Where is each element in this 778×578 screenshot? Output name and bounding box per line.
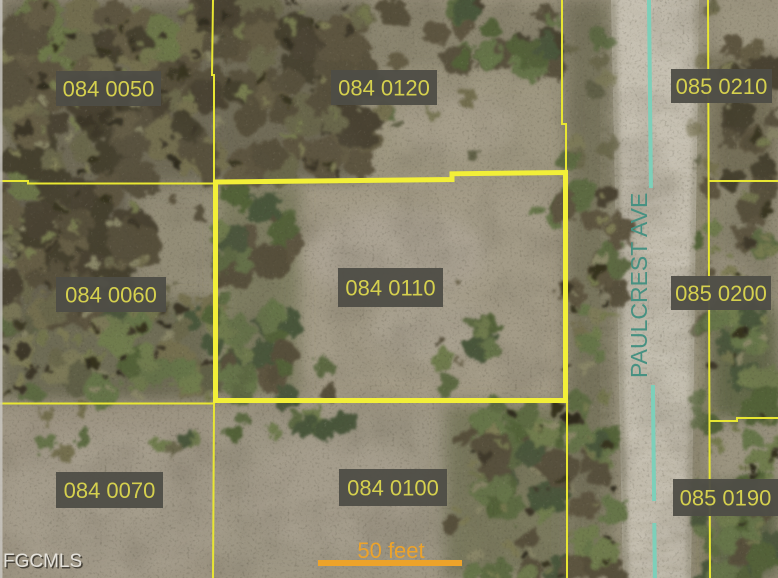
svg-text:084 0060: 084 0060 [65,283,157,308]
svg-text:PAULCREST AVE: PAULCREST AVE [626,193,652,378]
svg-text:084 0050: 084 0050 [63,77,155,102]
svg-text:084 0100: 084 0100 [347,476,439,501]
svg-text:FGCMLS: FGCMLS [3,551,82,572]
svg-text:085 0190: 085 0190 [680,486,772,511]
svg-text:085 0200: 085 0200 [675,281,767,306]
svg-text:085 0210: 085 0210 [676,74,768,99]
svg-text:084 0110: 084 0110 [345,276,435,301]
svg-text:50 feet: 50 feet [357,538,424,563]
svg-text:084 0070: 084 0070 [64,478,156,503]
svg-text:084 0120: 084 0120 [338,76,430,101]
